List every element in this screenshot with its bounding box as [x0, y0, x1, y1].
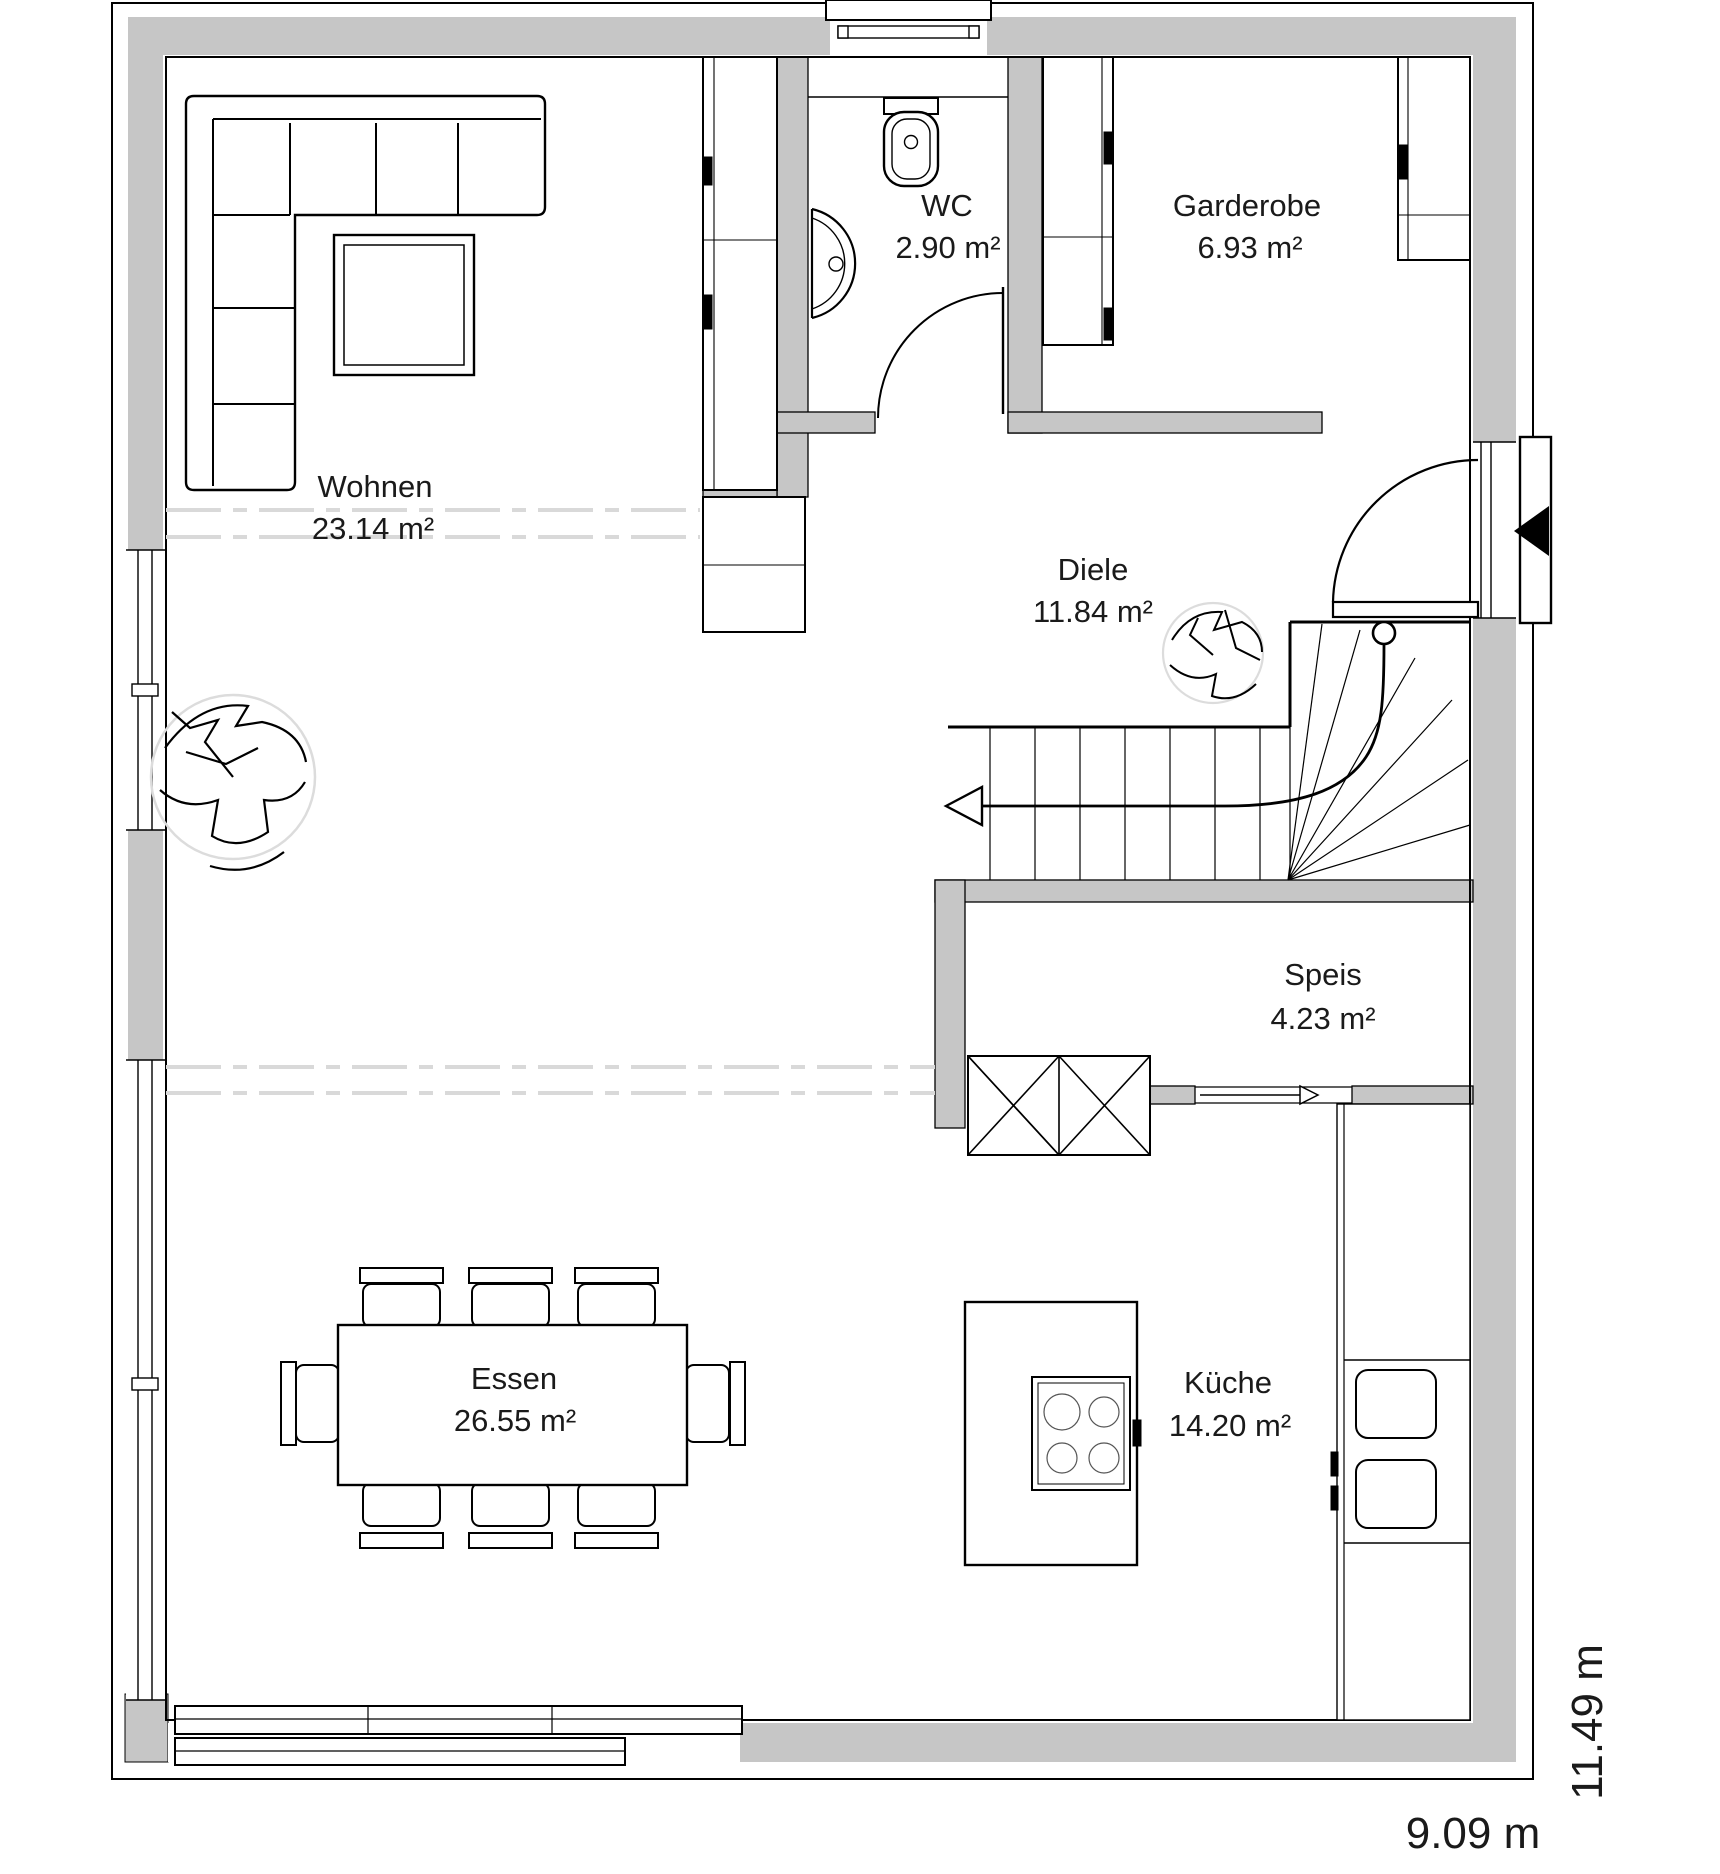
dimension-label-height: 11.49 m	[1563, 1644, 1612, 1800]
room-area-diele: 11.84 m²	[1033, 594, 1153, 629]
cabinet-garderobe-right	[1398, 57, 1470, 260]
toilet-icon	[884, 98, 938, 186]
wall-speis-door-stub-left	[1150, 1086, 1195, 1104]
plant-wohnen-icon	[151, 695, 315, 870]
corner-column	[125, 1694, 168, 1762]
room-label-diele: Diele	[1058, 552, 1129, 587]
kitchen-counter	[1331, 1104, 1470, 1720]
staircase	[946, 622, 1470, 880]
room-area-essen: 26.55 m²	[454, 1403, 576, 1438]
kitchen-island	[965, 1302, 1141, 1565]
cabinet-diele-sideboard	[703, 497, 805, 632]
ceiling-void-lines	[166, 510, 935, 1093]
floor-plan-svg: Wohnen 23.14 m² WC 2.90 m² Garderobe 6.9…	[0, 0, 1720, 1869]
speis-door-arrow-icon	[1300, 1086, 1318, 1104]
sink-basin-icon	[1356, 1460, 1436, 1528]
plant-diele-icon	[1163, 603, 1263, 703]
room-label-wc: WC	[921, 188, 973, 223]
wall-below-wc	[777, 412, 875, 433]
floor-plan-page: Wohnen 23.14 m² WC 2.90 m² Garderobe 6.9…	[0, 0, 1720, 1869]
wash-basin-icon	[812, 209, 855, 318]
room-label-wohnen: Wohnen	[318, 469, 433, 504]
stair-treads	[990, 624, 1470, 880]
wall-wc-garderobe	[1008, 57, 1042, 433]
room-area-wohnen: 23.14 m²	[312, 511, 434, 546]
wc-door	[878, 287, 1003, 418]
stair-direction-arrow-icon	[946, 787, 982, 825]
entry-door	[1333, 437, 1551, 623]
storage-x-cabinet-icon	[968, 1056, 1150, 1155]
window-wc-icon	[826, 0, 991, 38]
sink-basin-icon	[1356, 1370, 1436, 1438]
coffee-table	[334, 235, 474, 375]
dimension-label-width: 9.09 m	[1406, 1809, 1541, 1858]
living-room-furniture	[186, 96, 545, 490]
entry-door-leaf	[1333, 602, 1478, 617]
room-area-kueche: 14.20 m²	[1169, 1408, 1291, 1443]
island-handle-icon	[1133, 1420, 1141, 1446]
room-label-kueche: Küche	[1184, 1365, 1272, 1400]
room-area-wc: 2.90 m²	[895, 230, 1000, 265]
counter-handle-icon	[1331, 1452, 1338, 1476]
room-label-garderobe: Garderobe	[1173, 188, 1321, 223]
room-label-essen: Essen	[471, 1361, 557, 1396]
entry-door-opening	[1473, 442, 1516, 618]
speis-fixtures	[968, 1056, 1352, 1155]
wall-below-garderobe	[1008, 412, 1322, 433]
room-area-garderobe: 6.93 m²	[1197, 230, 1302, 265]
wall-speis-left	[935, 880, 965, 1128]
wall-below-stairs	[935, 880, 1473, 902]
built-in-cabinets	[703, 57, 1470, 632]
speis-sliding-door	[1195, 1086, 1352, 1104]
cabinet-wohnen-column	[703, 57, 777, 490]
entry-door-swing-arc	[1333, 460, 1478, 602]
counter-handle-icon	[1331, 1486, 1338, 1510]
room-label-speis: Speis	[1284, 957, 1362, 992]
wall-speis-door-stub-right	[1352, 1086, 1473, 1104]
room-area-speis: 4.23 m²	[1270, 1001, 1375, 1036]
cabinet-garderobe-left	[1043, 57, 1113, 345]
